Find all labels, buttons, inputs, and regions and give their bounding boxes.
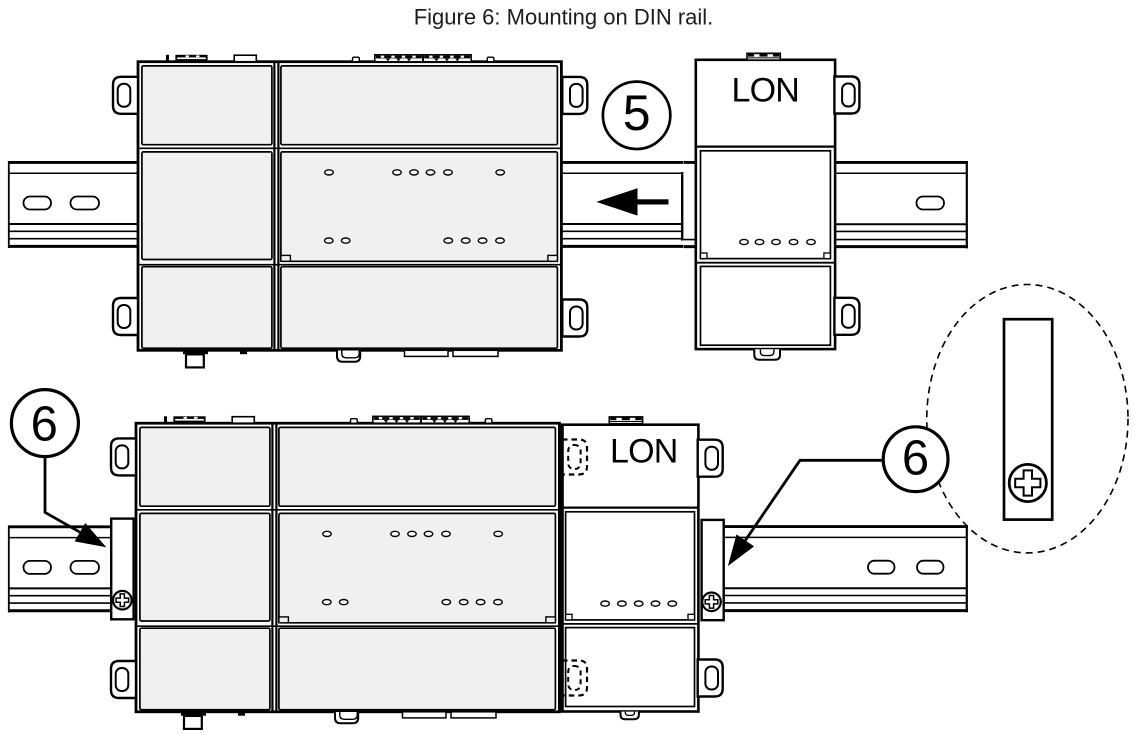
svg-text:5: 5 bbox=[623, 85, 651, 141]
svg-text:6: 6 bbox=[31, 398, 58, 452]
svg-text:Figure 6: Mounting on DIN rail: Figure 6: Mounting on DIN rail. bbox=[414, 5, 714, 30]
svg-text:LON: LON bbox=[610, 433, 678, 471]
svg-text:6: 6 bbox=[902, 432, 929, 486]
svg-text:LON: LON bbox=[732, 71, 800, 109]
